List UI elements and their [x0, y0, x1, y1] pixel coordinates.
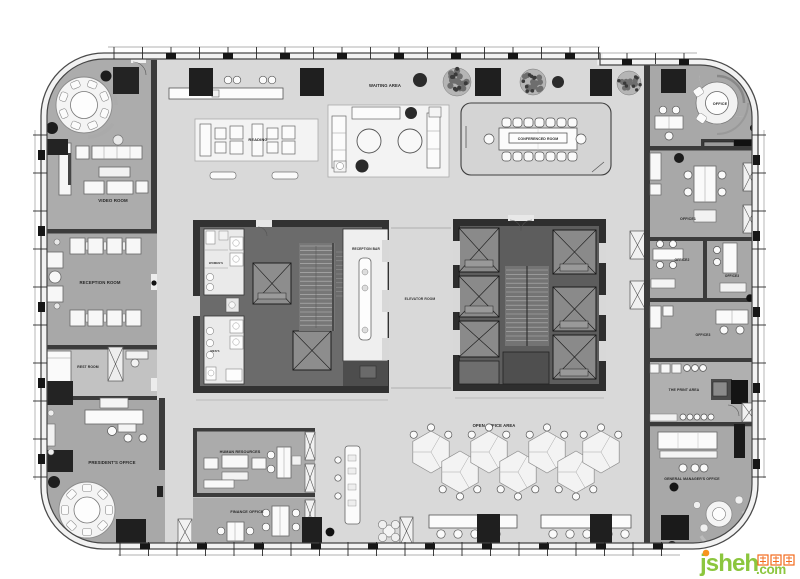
svg-text:VIDEO ROOM: VIDEO ROOM [98, 198, 128, 203]
svg-text:RECEPTION ROOM: RECEPTION ROOM [79, 280, 120, 285]
svg-text:GENERAL MANAGER'S OFFICE: GENERAL MANAGER'S OFFICE [664, 477, 720, 481]
svg-text:WOMEN'S: WOMEN'S [209, 261, 223, 265]
svg-text:THE PRINT AREA: THE PRINT AREA [669, 388, 700, 392]
svg-text:OFFICE3: OFFICE3 [695, 333, 710, 337]
svg-text:MEN'S: MEN'S [210, 349, 219, 353]
svg-text:PRESIDENT'S OFFICE: PRESIDENT'S OFFICE [88, 460, 135, 465]
svg-text:REST ROOM: REST ROOM [77, 365, 99, 369]
svg-text:HUMAN RESOURCES: HUMAN RESOURCES [220, 450, 261, 454]
svg-text:OFFICE3: OFFICE3 [725, 274, 739, 278]
svg-text:ELEVATOR ROOM: ELEVATOR ROOM [405, 297, 436, 301]
svg-text:OFFICE2: OFFICE2 [674, 258, 689, 262]
svg-text:FINANCE OFFICE: FINANCE OFFICE [230, 510, 264, 514]
svg-text:RECEPTION BAR: RECEPTION BAR [352, 247, 380, 251]
svg-text:CONFERENCED ROOM: CONFERENCED ROOM [518, 137, 559, 141]
svg-text:WAITING AREA: WAITING AREA [369, 83, 401, 88]
svg-text:OPEN OFFICE AREA: OPEN OFFICE AREA [473, 423, 516, 428]
svg-text:OFFICE: OFFICE [713, 102, 728, 106]
svg-text:OFFICE1: OFFICE1 [680, 217, 696, 221]
svg-text:READING: READING [248, 137, 267, 142]
